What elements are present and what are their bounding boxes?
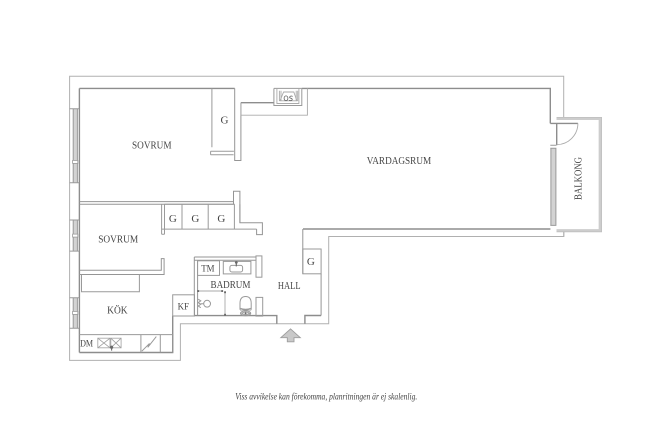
svg-text:SOVRUM: SOVRUM: [98, 234, 138, 246]
svg-text:KF: KF: [178, 302, 189, 312]
svg-text:G: G: [169, 213, 177, 225]
svg-text:G: G: [191, 213, 199, 225]
svg-text:KÖK: KÖK: [107, 304, 128, 316]
svg-text:DM: DM: [80, 339, 93, 349]
svg-text:Viss avvikelse kan förekomma,: Viss avvikelse kan förekomma, planritnin…: [235, 391, 417, 401]
svg-text:G: G: [217, 213, 225, 225]
svg-text:G: G: [221, 115, 229, 127]
svg-text:HALL: HALL: [278, 280, 301, 292]
svg-text:TM: TM: [201, 264, 214, 274]
svg-text:SOVRUM: SOVRUM: [132, 139, 172, 151]
svg-text:BALKONG: BALKONG: [573, 157, 585, 200]
svg-text:G: G: [307, 256, 315, 268]
svg-text:VARDAGSRUM: VARDAGSRUM: [367, 155, 432, 167]
svg-text:BADRUM: BADRUM: [211, 279, 251, 291]
